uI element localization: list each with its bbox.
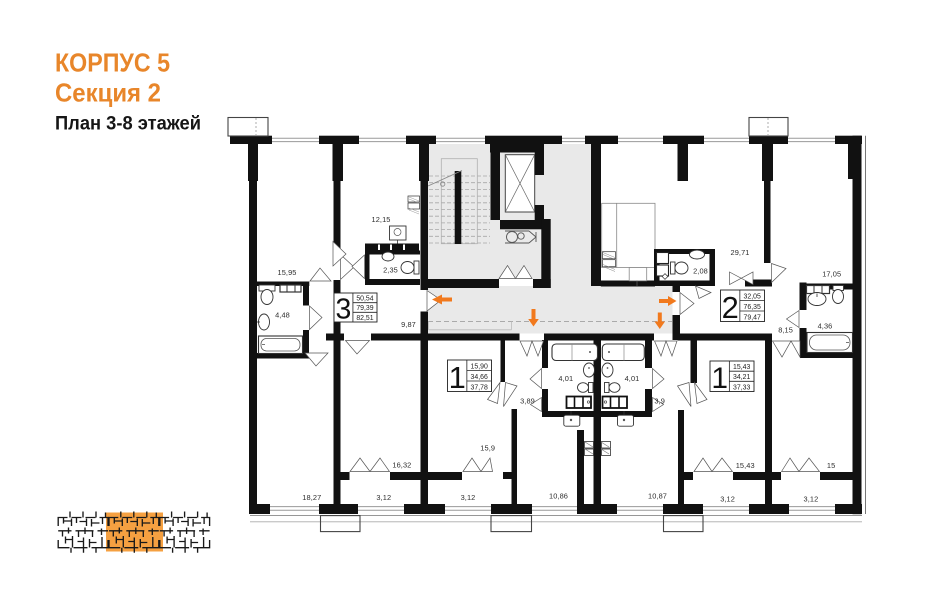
svg-text:15,43: 15,43 bbox=[733, 364, 750, 371]
svg-text:9,87: 9,87 bbox=[401, 320, 416, 329]
svg-text:3,12: 3,12 bbox=[461, 493, 476, 502]
svg-text:82,51: 82,51 bbox=[356, 315, 373, 322]
svg-text:29,71: 29,71 bbox=[731, 248, 750, 257]
svg-text:79,39: 79,39 bbox=[356, 305, 373, 312]
svg-text:15,43: 15,43 bbox=[736, 461, 755, 470]
svg-text:37,78: 37,78 bbox=[471, 384, 488, 391]
svg-text:10,87: 10,87 bbox=[648, 491, 667, 500]
svg-text:2,35: 2,35 bbox=[383, 265, 398, 274]
svg-text:3,12: 3,12 bbox=[376, 493, 391, 502]
svg-text:15,90: 15,90 bbox=[471, 363, 488, 370]
svg-text:1: 1 bbox=[711, 362, 728, 395]
svg-text:2,08: 2,08 bbox=[693, 267, 708, 276]
svg-text:4,48: 4,48 bbox=[275, 311, 290, 320]
svg-text:76,35: 76,35 bbox=[744, 304, 761, 311]
svg-text:План 3-8 этажей: План 3-8 этажей bbox=[55, 114, 201, 135]
svg-text:3,12: 3,12 bbox=[720, 494, 735, 503]
svg-text:3,9: 3,9 bbox=[654, 396, 665, 405]
svg-text:34,21: 34,21 bbox=[733, 374, 750, 381]
svg-text:3,89: 3,89 bbox=[520, 396, 535, 405]
svg-text:4,01: 4,01 bbox=[625, 374, 640, 383]
svg-text:12,15: 12,15 bbox=[372, 215, 391, 224]
svg-text:18,27: 18,27 bbox=[302, 493, 321, 502]
svg-text:3: 3 bbox=[336, 294, 352, 326]
svg-text:2: 2 bbox=[722, 290, 739, 325]
svg-text:16,32: 16,32 bbox=[392, 460, 411, 469]
svg-text:34,66: 34,66 bbox=[471, 374, 488, 381]
svg-text:37,33: 37,33 bbox=[733, 384, 750, 391]
svg-text:4,01: 4,01 bbox=[558, 374, 573, 383]
svg-text:10,86: 10,86 bbox=[549, 491, 568, 500]
svg-text:1: 1 bbox=[449, 360, 466, 395]
svg-text:Секция 2: Секция 2 bbox=[55, 78, 161, 108]
svg-text:15: 15 bbox=[827, 461, 835, 470]
svg-text:79,47: 79,47 bbox=[744, 314, 761, 321]
svg-text:8,15: 8,15 bbox=[778, 326, 793, 335]
svg-text:4,36: 4,36 bbox=[818, 322, 833, 331]
svg-text:15,9: 15,9 bbox=[480, 443, 495, 452]
svg-text:3,12: 3,12 bbox=[804, 494, 819, 503]
svg-text:КОРПУС 5: КОРПУС 5 bbox=[55, 48, 170, 78]
svg-text:50,54: 50,54 bbox=[356, 295, 373, 302]
svg-text:17,05: 17,05 bbox=[822, 270, 841, 279]
svg-text:32,05: 32,05 bbox=[744, 293, 761, 300]
svg-text:15,95: 15,95 bbox=[278, 268, 297, 277]
